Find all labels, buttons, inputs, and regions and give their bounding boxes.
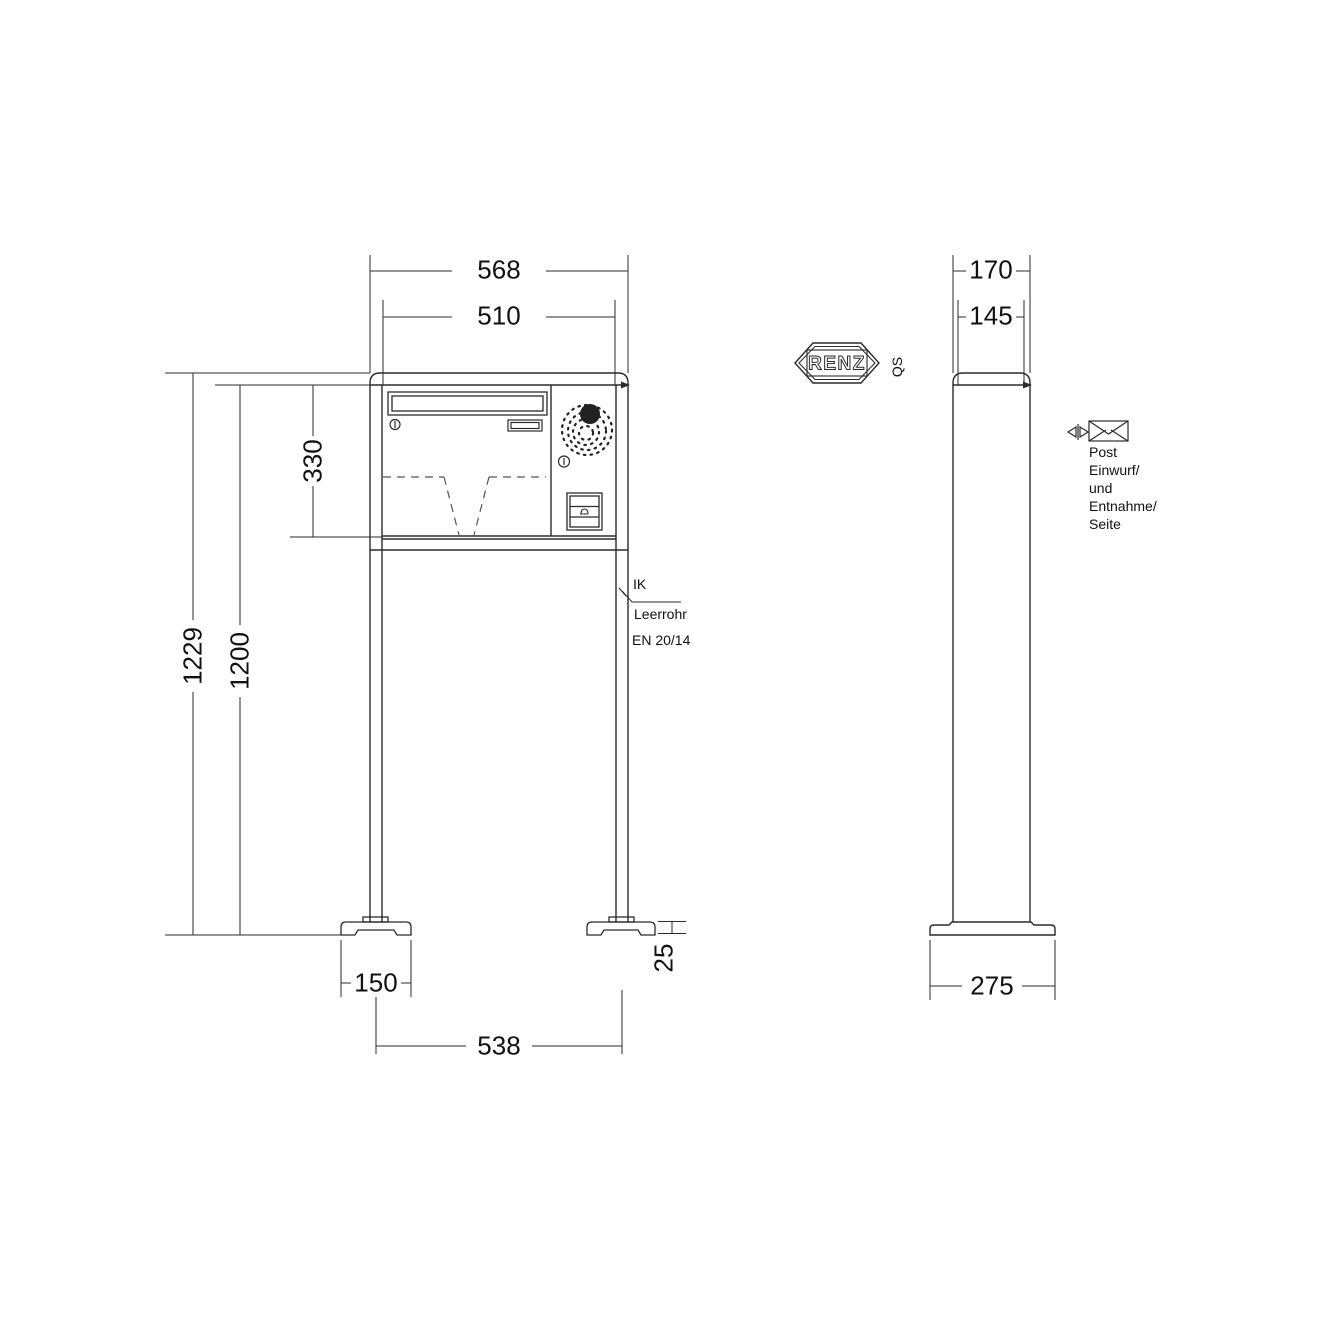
side-note-line-1: Post	[1089, 444, 1117, 460]
dim-depth-outer-label: 170	[969, 255, 1012, 286]
bell-icon	[580, 509, 588, 514]
callout-ik-label: IK	[633, 576, 646, 592]
technical-drawing-canvas: RENZ 568 510 330 1229 1200 150 538 25 17…	[0, 0, 1320, 1320]
side-dimension-lines	[930, 255, 1055, 1000]
dim-box-height-label: 330	[298, 439, 329, 482]
side-note-line-3: und	[1089, 480, 1112, 496]
letter-slot	[388, 392, 547, 415]
dim-width-inner-label: 510	[477, 301, 520, 332]
side-note-line-4: Entnahme/	[1089, 498, 1157, 514]
front-base-plates	[341, 917, 655, 935]
callout-leerrohr-label: Leerrohr	[634, 606, 687, 622]
qs-mark-label: QS	[889, 357, 905, 377]
renz-logo: RENZ	[795, 343, 879, 383]
dim-base-height-label: 25	[649, 944, 680, 973]
dim-depth-inner-label: 145	[969, 301, 1012, 332]
dim-base-depth-label: 275	[970, 971, 1013, 1002]
left-right-arrows-icon	[1068, 424, 1088, 440]
door-lock-icon	[390, 420, 400, 430]
speaker-grille-dense-dot	[580, 404, 600, 424]
dim-base-spacing-label: 538	[477, 1031, 520, 1062]
renz-logo-text: RENZ	[808, 354, 866, 375]
callout-en-label: EN 20/14	[632, 632, 690, 648]
dim-width-outer-label: 568	[477, 255, 520, 286]
dim-base-width-label: 150	[354, 968, 397, 999]
bell-button-panel	[567, 493, 602, 530]
side-note-line-5: Seite	[1089, 516, 1121, 532]
side-note-line-2: Einwurf/	[1089, 462, 1140, 478]
front-view-body	[370, 373, 628, 922]
dim-height-post-label: 1200	[225, 632, 256, 690]
dim-height-total-label: 1229	[178, 627, 209, 685]
intercom-lock-icon	[559, 456, 570, 467]
name-plate	[508, 420, 542, 431]
side-view-body	[930, 373, 1055, 935]
flap-dashed-lines	[383, 477, 546, 535]
envelope-icon	[1089, 421, 1128, 441]
